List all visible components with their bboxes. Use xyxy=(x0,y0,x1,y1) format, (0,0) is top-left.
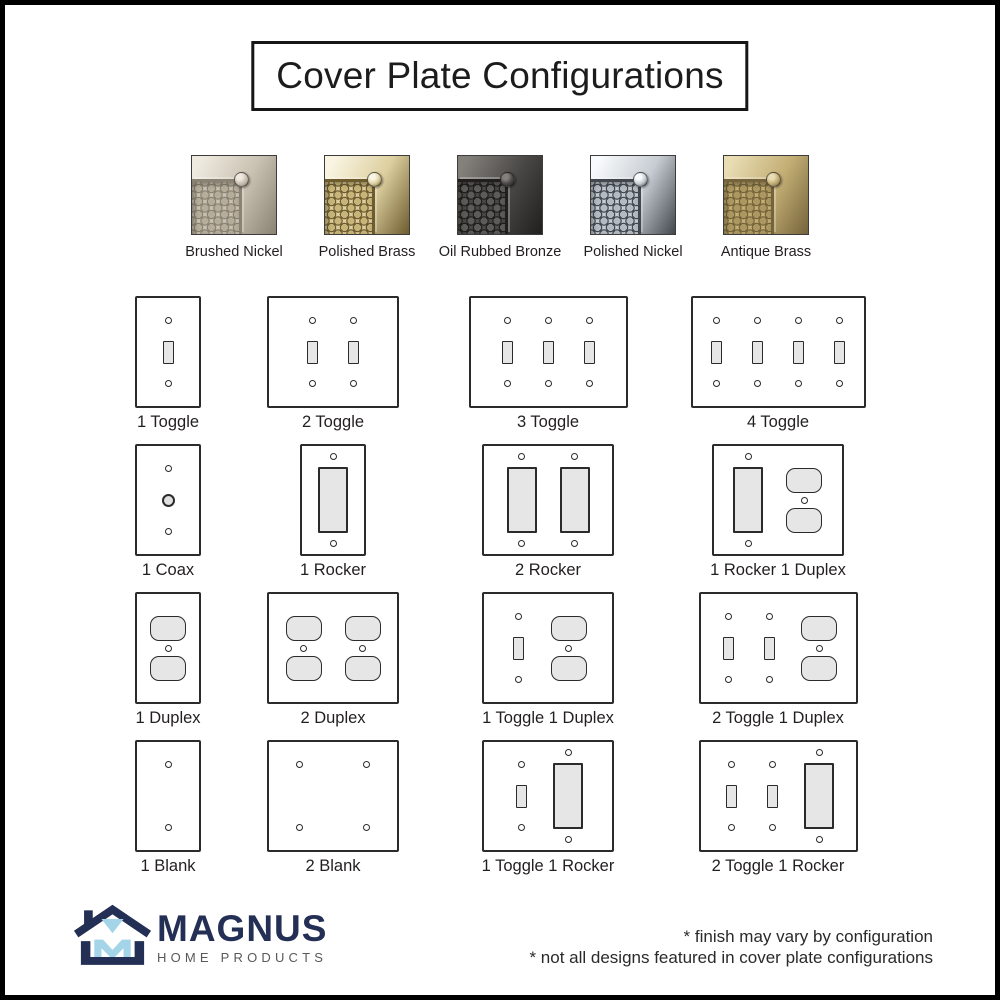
screw-hole-icon xyxy=(586,380,593,387)
screw-hole-icon xyxy=(300,645,307,652)
screw-hole-icon xyxy=(795,380,802,387)
rocker-gang-column xyxy=(728,446,768,554)
rocker-opening xyxy=(560,467,590,533)
toggle-gang-column xyxy=(493,298,521,406)
rocker-opening xyxy=(804,763,834,829)
config-cell-3-toggle: 3 Toggle xyxy=(469,296,628,444)
cover-plate-1-rocker xyxy=(300,444,366,556)
duplex-outlet-opening xyxy=(150,656,186,681)
screw-hole-icon xyxy=(728,761,735,768)
screw-hole-icon xyxy=(565,645,572,652)
page-title: Cover Plate Configurations xyxy=(276,55,723,96)
duplex-outlet-opening xyxy=(551,616,587,641)
screw-hole-icon xyxy=(545,317,552,324)
config-label: 2 Toggle 1 Duplex xyxy=(712,709,844,728)
screw-hole-icon xyxy=(165,528,172,535)
screw-hole-icon xyxy=(165,645,172,652)
screw-hole-icon xyxy=(565,749,572,756)
toggle-gang-column xyxy=(534,298,562,406)
screw-hole-icon xyxy=(363,824,370,831)
screw-hole-icon xyxy=(836,317,843,324)
finish-swatch-polished-brass: Polished Brass xyxy=(325,155,409,260)
toggle-opening xyxy=(767,785,778,808)
blank-gang-column xyxy=(141,742,195,850)
config-cell-1-rocker: 1 Rocker xyxy=(300,444,366,592)
toggle-opening xyxy=(723,637,734,660)
knob-screw-icon xyxy=(633,172,648,187)
config-label: 1 Coax xyxy=(142,561,194,580)
config-cell-4-toggle: 4 Toggle xyxy=(691,296,866,444)
config-cell-1-blank: 1 Blank xyxy=(135,740,201,888)
toggle-gang-column xyxy=(505,594,533,702)
screw-hole-icon xyxy=(309,380,316,387)
toggle-gang-column xyxy=(755,594,783,702)
toggle-gang-column xyxy=(758,742,786,850)
screw-hole-icon xyxy=(165,824,172,831)
rocker-opening xyxy=(507,467,537,533)
cover-plate-1-duplex xyxy=(135,592,201,704)
finish-row: Brushed NickelPolished BrassOil Rubbed B… xyxy=(5,155,995,260)
config-label: 2 Rocker xyxy=(515,561,581,580)
screw-hole-icon xyxy=(518,540,525,547)
duplex-outlet-opening xyxy=(286,656,322,681)
cover-plate-2-rocker xyxy=(482,444,614,556)
config-cell-2-rocker: 2 Rocker xyxy=(482,444,614,592)
duplex-outlet-opening xyxy=(786,468,822,493)
toggle-opening xyxy=(543,341,554,364)
duplex-outlet-opening xyxy=(551,656,587,681)
toggle-opening xyxy=(513,637,524,660)
toggle-opening xyxy=(307,341,318,364)
duplex-gang-column xyxy=(340,594,386,702)
screw-hole-icon xyxy=(565,836,572,843)
screw-hole-icon xyxy=(165,465,172,472)
duplex-gang-column xyxy=(546,594,592,702)
toggle-gang-column xyxy=(299,298,327,406)
config-label: 2 Blank xyxy=(305,857,360,876)
hammered-texture xyxy=(591,179,641,234)
rocker-gang-column xyxy=(502,446,542,554)
cover-plate-2-blank xyxy=(267,740,399,852)
blank-gang-column xyxy=(273,742,327,850)
screw-hole-icon xyxy=(766,613,773,620)
blank-gang-column xyxy=(340,742,394,850)
config-label: 4 Toggle xyxy=(747,413,809,432)
duplex-gang-column xyxy=(781,446,827,554)
screw-hole-icon xyxy=(350,380,357,387)
screw-hole-icon xyxy=(309,317,316,324)
screw-hole-icon xyxy=(836,380,843,387)
screw-hole-icon xyxy=(518,824,525,831)
screw-hole-icon xyxy=(713,380,720,387)
screw-hole-icon xyxy=(518,761,525,768)
screw-hole-icon xyxy=(350,317,357,324)
rocker-gang-column xyxy=(555,446,595,554)
toggle-opening xyxy=(711,341,722,364)
config-label: 3 Toggle xyxy=(517,413,579,432)
config-cell-1-rocker-1-duplex: 1 Rocker 1 Duplex xyxy=(710,444,846,592)
config-grid: 1 Toggle2 Toggle3 Toggle4 Toggle1 Coax1 … xyxy=(100,296,890,888)
finish-label: Antique Brass xyxy=(721,244,811,260)
duplex-outlet-opening xyxy=(801,656,837,681)
screw-hole-icon xyxy=(571,453,578,460)
toggle-opening xyxy=(834,341,845,364)
screw-hole-icon xyxy=(359,645,366,652)
toggle-opening xyxy=(516,785,527,808)
footnote-finish-vary: * finish may vary by configuration xyxy=(529,926,933,947)
cover-plate-1-toggle-1-rocker xyxy=(482,740,614,852)
toggle-gang-column xyxy=(340,298,368,406)
screw-hole-icon xyxy=(165,380,172,387)
config-label: 1 Toggle 1 Duplex xyxy=(482,709,614,728)
screw-hole-icon xyxy=(766,676,773,683)
finish-swatch-antique-brass: Antique Brass xyxy=(724,155,808,260)
config-cell-2-toggle-1-rocker: 2 Toggle 1 Rocker xyxy=(699,740,858,888)
toggle-opening xyxy=(502,341,513,364)
config-cell-1-toggle: 1 Toggle xyxy=(135,296,201,444)
rocker-opening xyxy=(733,467,763,533)
toggle-gang-column xyxy=(154,298,182,406)
toggle-gang-column xyxy=(826,298,854,406)
duplex-outlet-opening xyxy=(786,508,822,533)
logo-name: MAGNUS xyxy=(157,910,327,947)
screw-hole-icon xyxy=(754,317,761,324)
config-label: 1 Toggle 1 Rocker xyxy=(482,857,615,876)
logo-text: MAGNUS HOME PRODUCTS xyxy=(157,910,327,965)
finish-photo-polished-nickel xyxy=(590,155,676,235)
config-label: 1 Blank xyxy=(140,857,195,876)
finish-swatch-brushed-nickel: Brushed Nickel xyxy=(192,155,276,260)
screw-hole-icon xyxy=(545,380,552,387)
rocker-gang-column xyxy=(313,446,353,554)
config-label: 1 Toggle xyxy=(137,413,199,432)
toggle-opening xyxy=(348,341,359,364)
config-label: 2 Toggle 1 Rocker xyxy=(712,857,845,876)
toggle-opening xyxy=(584,341,595,364)
duplex-outlet-opening xyxy=(345,616,381,641)
cover-plate-2-toggle-1-duplex xyxy=(699,592,858,704)
rocker-gang-column xyxy=(799,742,839,850)
knob-screw-icon xyxy=(367,172,382,187)
screw-hole-icon xyxy=(713,317,720,324)
rocker-opening xyxy=(318,467,348,533)
config-label: 1 Rocker xyxy=(300,561,366,580)
toggle-gang-column xyxy=(507,742,535,850)
screw-hole-icon xyxy=(816,836,823,843)
cover-plate-1-toggle-1-duplex xyxy=(482,592,614,704)
finish-photo-antique-brass xyxy=(723,155,809,235)
finish-label: Polished Nickel xyxy=(583,244,682,260)
screw-hole-icon xyxy=(769,761,776,768)
screw-hole-icon xyxy=(296,761,303,768)
rocker-opening xyxy=(553,763,583,829)
toggle-opening xyxy=(764,637,775,660)
screw-hole-icon xyxy=(801,497,808,504)
toggle-gang-column xyxy=(717,742,745,850)
cover-plate-1-blank xyxy=(135,740,201,852)
coax-gang-column xyxy=(154,446,182,554)
footnote-designs: * not all designs featured in cover plat… xyxy=(529,947,933,968)
cover-plate-3-toggle xyxy=(469,296,628,408)
config-cell-2-toggle-1-duplex: 2 Toggle 1 Duplex xyxy=(699,592,858,740)
cover-plate-2-duplex xyxy=(267,592,399,704)
config-cell-2-toggle: 2 Toggle xyxy=(267,296,399,444)
config-cell-2-duplex: 2 Duplex xyxy=(267,592,399,740)
screw-hole-icon xyxy=(728,824,735,831)
duplex-outlet-opening xyxy=(345,656,381,681)
screw-hole-icon xyxy=(571,540,578,547)
screw-hole-icon xyxy=(754,380,761,387)
cover-plate-2-toggle xyxy=(267,296,399,408)
screw-hole-icon xyxy=(296,824,303,831)
toggle-gang-column xyxy=(703,298,731,406)
cover-plate-1-toggle xyxy=(135,296,201,408)
screw-hole-icon xyxy=(518,453,525,460)
screw-hole-icon xyxy=(165,761,172,768)
screw-hole-icon xyxy=(586,317,593,324)
infographic-canvas: Cover Plate Configurations Brushed Nicke… xyxy=(0,0,1000,1000)
screw-hole-icon xyxy=(515,613,522,620)
config-cell-1-duplex: 1 Duplex xyxy=(135,592,201,740)
config-label: 2 Toggle xyxy=(302,413,364,432)
magnus-house-icon xyxy=(73,904,152,972)
config-cell-2-blank: 2 Blank xyxy=(267,740,399,888)
toggle-gang-column xyxy=(575,298,603,406)
rocker-gang-column xyxy=(548,742,588,850)
knob-screw-icon xyxy=(766,172,781,187)
magnus-logo: MAGNUS HOME PRODUCTS xyxy=(73,904,327,972)
finish-photo-polished-brass xyxy=(324,155,410,235)
screw-hole-icon xyxy=(515,676,522,683)
finish-label: Oil Rubbed Bronze xyxy=(439,244,562,260)
screw-hole-icon xyxy=(745,540,752,547)
screw-hole-icon xyxy=(330,453,337,460)
cover-plate-2-toggle-1-rocker xyxy=(699,740,858,852)
screw-hole-icon xyxy=(745,453,752,460)
toggle-opening xyxy=(726,785,737,808)
screw-hole-icon xyxy=(363,761,370,768)
config-label: 1 Duplex xyxy=(135,709,200,728)
knob-screw-icon xyxy=(500,172,515,187)
screw-hole-icon xyxy=(816,645,823,652)
screw-hole-icon xyxy=(330,540,337,547)
toggle-gang-column xyxy=(744,298,772,406)
config-label: 2 Duplex xyxy=(300,709,365,728)
hammered-texture xyxy=(458,179,508,234)
screw-hole-icon xyxy=(165,317,172,324)
screw-hole-icon xyxy=(725,676,732,683)
finish-swatch-polished-nickel: Polished Nickel xyxy=(591,155,675,260)
hammered-texture xyxy=(192,179,242,234)
toggle-gang-column xyxy=(714,594,742,702)
finish-label: Brushed Nickel xyxy=(185,244,283,260)
config-label: 1 Rocker 1 Duplex xyxy=(710,561,846,580)
config-cell-1-toggle-1-duplex: 1 Toggle 1 Duplex xyxy=(482,592,614,740)
footnotes: * finish may vary by configuration * not… xyxy=(529,926,933,968)
config-cell-1-toggle-1-rocker: 1 Toggle 1 Rocker xyxy=(482,740,615,888)
toggle-opening xyxy=(793,341,804,364)
cover-plate-1-coax xyxy=(135,444,201,556)
knob-screw-icon xyxy=(234,172,249,187)
finish-label: Polished Brass xyxy=(319,244,416,260)
finish-swatch-oil-rubbed-bronze: Oil Rubbed Bronze xyxy=(458,155,542,260)
logo-tagline: HOME PRODUCTS xyxy=(157,950,327,965)
coax-opening xyxy=(162,494,175,507)
screw-hole-icon xyxy=(769,824,776,831)
duplex-outlet-opening xyxy=(286,616,322,641)
page-title-box: Cover Plate Configurations xyxy=(251,41,748,111)
hammered-texture xyxy=(325,179,375,234)
duplex-gang-column xyxy=(281,594,327,702)
cover-plate-4-toggle xyxy=(691,296,866,408)
screw-hole-icon xyxy=(504,380,511,387)
config-cell-1-coax: 1 Coax xyxy=(135,444,201,592)
duplex-outlet-opening xyxy=(150,616,186,641)
finish-photo-brushed-nickel xyxy=(191,155,277,235)
screw-hole-icon xyxy=(504,317,511,324)
screw-hole-icon xyxy=(816,749,823,756)
duplex-outlet-opening xyxy=(801,616,837,641)
screw-hole-icon xyxy=(725,613,732,620)
screw-hole-icon xyxy=(795,317,802,324)
cover-plate-1-rocker-1-duplex xyxy=(712,444,844,556)
hammered-texture xyxy=(724,179,774,234)
toggle-gang-column xyxy=(785,298,813,406)
duplex-gang-column xyxy=(145,594,191,702)
toggle-opening xyxy=(752,341,763,364)
duplex-gang-column xyxy=(796,594,842,702)
finish-photo-oil-rubbed-bronze xyxy=(457,155,543,235)
toggle-opening xyxy=(163,341,174,364)
